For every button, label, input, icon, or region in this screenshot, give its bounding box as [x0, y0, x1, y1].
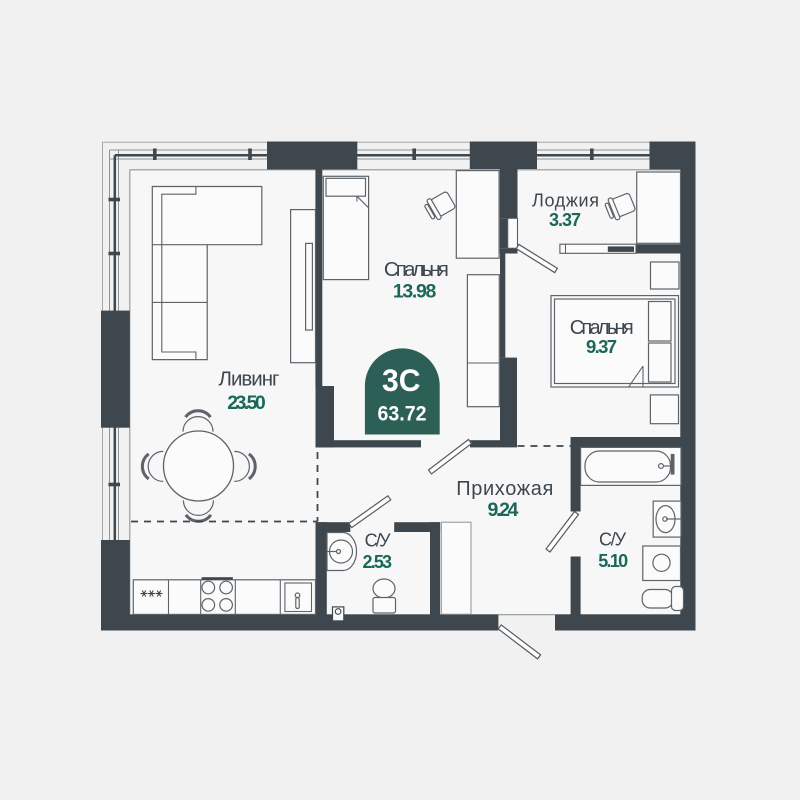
svg-text:Прихожая: Прихожая	[456, 478, 553, 500]
svg-text:63.72: 63.72	[378, 402, 427, 426]
svg-text:5.10: 5.10	[598, 551, 628, 571]
svg-text:3.37: 3.37	[549, 210, 581, 230]
svg-text:9.37: 9.37	[586, 336, 617, 357]
svg-text:Лоджия: Лоджия	[532, 191, 599, 211]
svg-text:13.98: 13.98	[393, 281, 437, 303]
svg-text:С/У: С/У	[365, 531, 392, 551]
svg-text:С/У: С/У	[599, 530, 627, 550]
svg-text:23.50: 23.50	[227, 392, 266, 414]
svg-text:2.53: 2.53	[363, 552, 393, 572]
svg-text:3С: 3С	[382, 362, 421, 398]
svg-text:9.24: 9.24	[488, 499, 519, 521]
svg-text:Спальня: Спальня	[384, 258, 449, 281]
svg-text:Ливинг: Ливинг	[219, 368, 280, 391]
